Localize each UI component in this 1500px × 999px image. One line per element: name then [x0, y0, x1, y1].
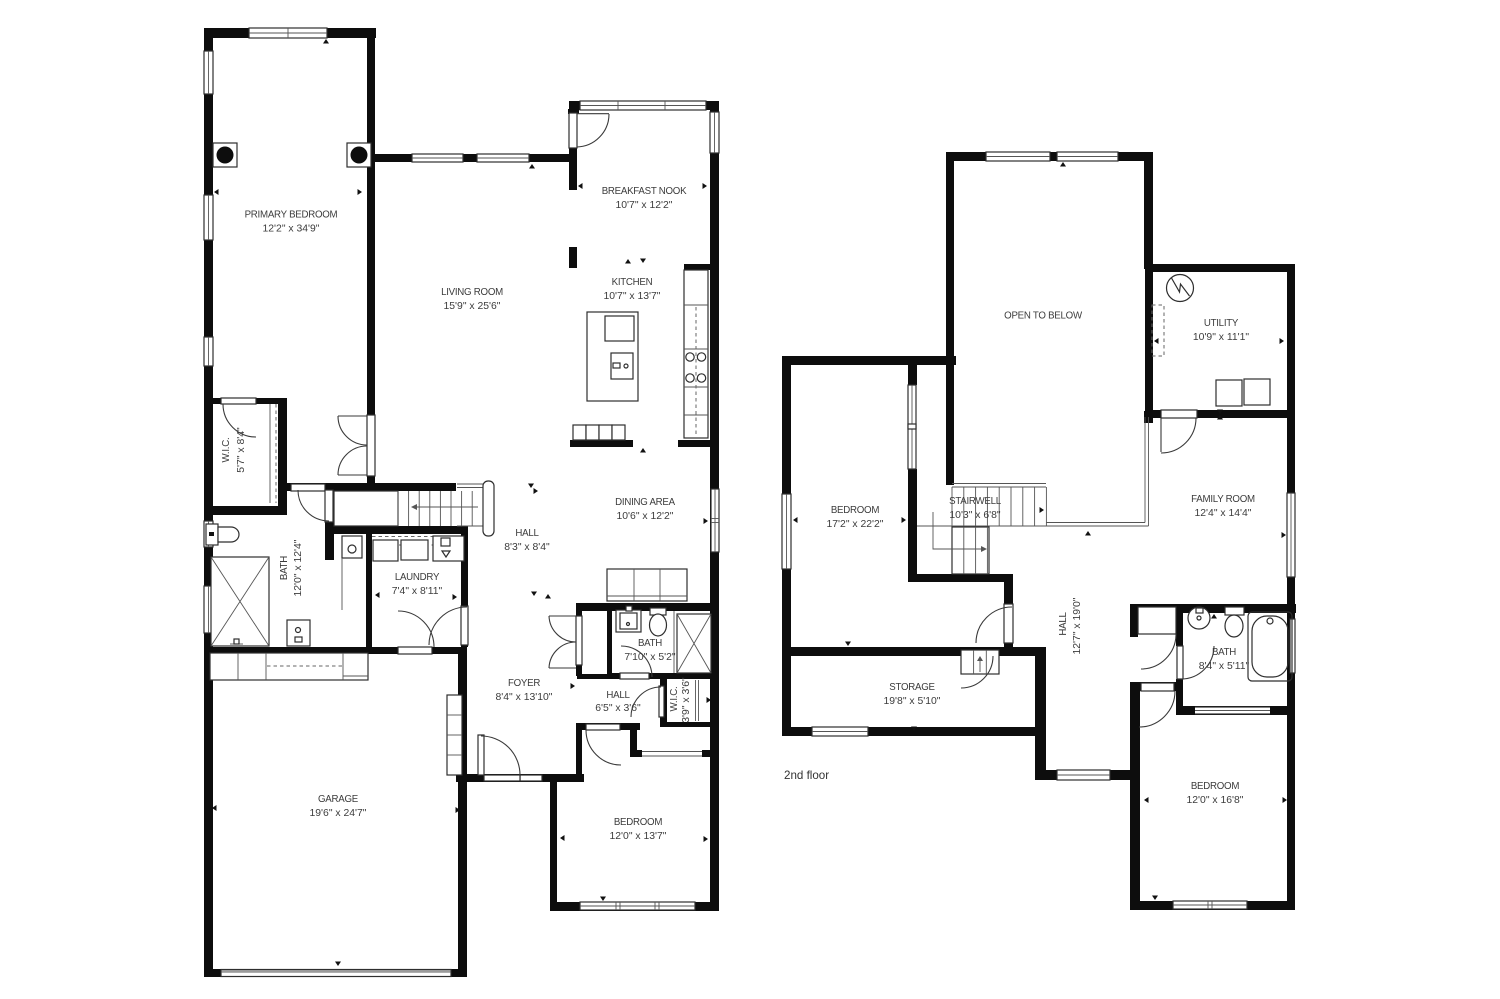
- svg-text:LIVING ROOM: LIVING ROOM: [441, 287, 503, 298]
- svg-text:FAMILY ROOM: FAMILY ROOM: [1191, 494, 1255, 505]
- svg-text:HALL: HALL: [1058, 612, 1069, 636]
- svg-text:LAUNDRY: LAUNDRY: [395, 572, 440, 583]
- svg-text:8'3" x 8'4": 8'3" x 8'4": [504, 542, 550, 553]
- svg-text:10'7" x 12'2": 10'7" x 12'2": [616, 200, 673, 211]
- svg-text:10'6" x 12'2": 10'6" x 12'2": [617, 511, 674, 522]
- svg-text:19'6" x 24'7": 19'6" x 24'7": [310, 808, 367, 819]
- svg-text:W.I.C.: W.I.C.: [221, 438, 232, 463]
- svg-text:2nd floor: 2nd floor: [784, 769, 829, 782]
- svg-text:8'4" x 5'11": 8'4" x 5'11": [1199, 661, 1250, 672]
- svg-text:BATH: BATH: [279, 556, 290, 580]
- svg-text:BREAKFAST NOOK: BREAKFAST NOOK: [602, 186, 687, 197]
- svg-text:12'2" x 34'9": 12'2" x 34'9": [263, 224, 320, 235]
- svg-text:17'2" x 22'2": 17'2" x 22'2": [827, 519, 884, 530]
- svg-text:BATH: BATH: [638, 638, 662, 649]
- svg-text:12'0" x 12'4": 12'0" x 12'4": [293, 539, 304, 596]
- svg-text:6'5" x 3'6": 6'5" x 3'6": [595, 703, 641, 714]
- svg-text:BEDROOM: BEDROOM: [831, 505, 879, 516]
- svg-text:BEDROOM: BEDROOM: [614, 817, 662, 828]
- svg-text:5'7" x 8'4": 5'7" x 8'4": [236, 427, 247, 473]
- svg-text:8'4" x 13'10": 8'4" x 13'10": [496, 692, 553, 703]
- svg-text:FOYER: FOYER: [508, 678, 540, 689]
- svg-text:10'9" x 11'1": 10'9" x 11'1": [1193, 332, 1250, 343]
- svg-text:HALL: HALL: [606, 690, 630, 701]
- svg-text:10'3" x 6'8": 10'3" x 6'8": [949, 510, 1001, 521]
- svg-text:GARAGE: GARAGE: [318, 794, 359, 805]
- svg-text:7'4" x 8'11": 7'4" x 8'11": [392, 586, 443, 597]
- svg-text:HALL: HALL: [515, 528, 539, 539]
- svg-text:STAIRWELL: STAIRWELL: [949, 496, 1002, 507]
- svg-text:W.I.C.: W.I.C.: [669, 687, 680, 712]
- svg-text:DINING AREA: DINING AREA: [615, 497, 675, 508]
- svg-text:PRIMARY BEDROOM: PRIMARY BEDROOM: [245, 210, 338, 221]
- svg-text:OPEN TO BELOW: OPEN TO BELOW: [1004, 311, 1083, 322]
- svg-text:UTILITY: UTILITY: [1204, 318, 1239, 329]
- svg-text:12'7" x 19'0": 12'7" x 19'0": [1072, 597, 1083, 654]
- svg-text:15'9" x 25'6": 15'9" x 25'6": [444, 301, 501, 312]
- svg-text:12'4" x 14'4": 12'4" x 14'4": [1195, 508, 1252, 519]
- svg-text:19'8" x 5'10": 19'8" x 5'10": [884, 696, 941, 707]
- svg-text:KITCHEN: KITCHEN: [612, 277, 653, 288]
- svg-text:3'9" x 3'6": 3'9" x 3'6": [681, 677, 692, 723]
- svg-text:STORAGE: STORAGE: [889, 682, 935, 693]
- svg-text:12'0" x 16'8": 12'0" x 16'8": [1187, 795, 1244, 806]
- svg-text:BATH: BATH: [1212, 647, 1236, 658]
- svg-text:7'10" x 5'2": 7'10" x 5'2": [624, 652, 676, 663]
- svg-text:BEDROOM: BEDROOM: [1191, 781, 1239, 792]
- svg-text:12'0" x 13'7": 12'0" x 13'7": [610, 831, 667, 842]
- svg-text:10'7" x 13'7": 10'7" x 13'7": [604, 291, 661, 302]
